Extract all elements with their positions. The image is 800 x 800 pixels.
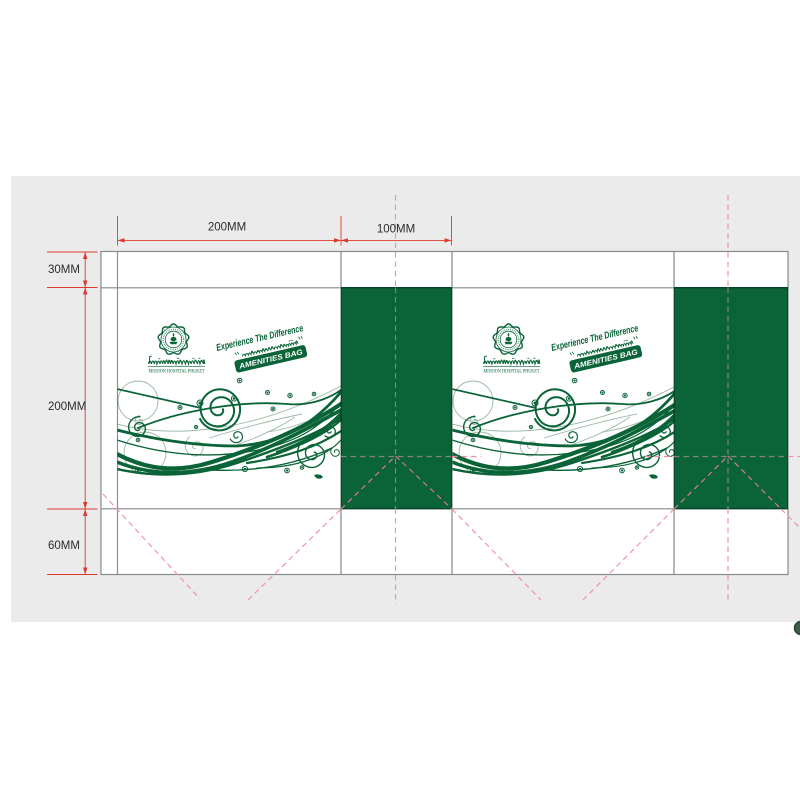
svg-text:60MM: 60MM xyxy=(48,540,80,552)
svg-text:100MM: 100MM xyxy=(377,224,415,236)
svg-text:30MM: 30MM xyxy=(48,264,80,276)
svg-text:200MM: 200MM xyxy=(208,222,246,234)
svg-text:200MM: 200MM xyxy=(48,401,86,413)
